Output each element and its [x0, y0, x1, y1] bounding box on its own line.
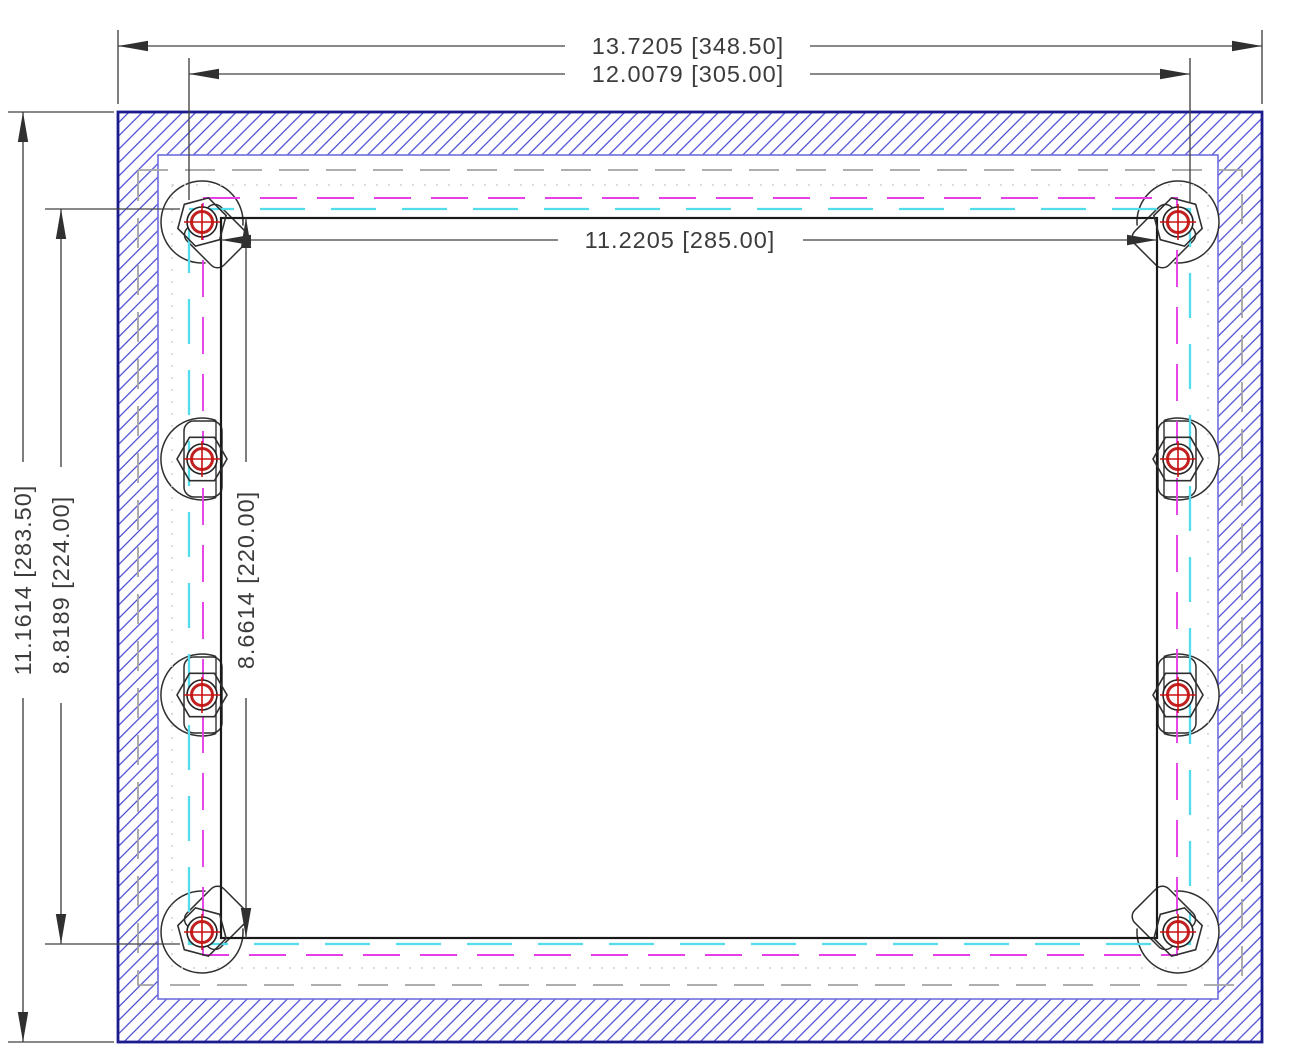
frame-inner-edge	[158, 155, 1218, 999]
dim-label-overall-width: 13.7205 [348.50]	[592, 33, 784, 59]
cad-canvas: 13.7205 [348.50] 12.0079 [305.00] 11.220…	[0, 0, 1305, 1057]
cyan-dashed-outline	[189, 209, 1190, 944]
magenta-dashed-outline	[203, 198, 1177, 955]
dim-label-opening-width: 11.2205 [285.00]	[585, 227, 776, 253]
panel-cutout-drawing: 13.7205 [348.50] 12.0079 [305.00] 11.220…	[0, 0, 1305, 1057]
mounting-stud-bases	[144, 164, 1236, 990]
mounting-stud-nuts	[169, 189, 1211, 965]
dim-label-opening-height: 8.6614 [220.00]	[233, 491, 259, 669]
opening-rect	[221, 218, 1157, 938]
faint-dotted-outline	[172, 185, 1208, 968]
dim-label-mount-width: 12.0079 [305.00]	[592, 61, 784, 87]
dim-label-mount-height: 8.8189 [224.00]	[48, 496, 74, 674]
dim-label-overall-height: 11.1614 [283.50]	[10, 485, 36, 676]
hidden-outline-gray	[138, 170, 1242, 985]
